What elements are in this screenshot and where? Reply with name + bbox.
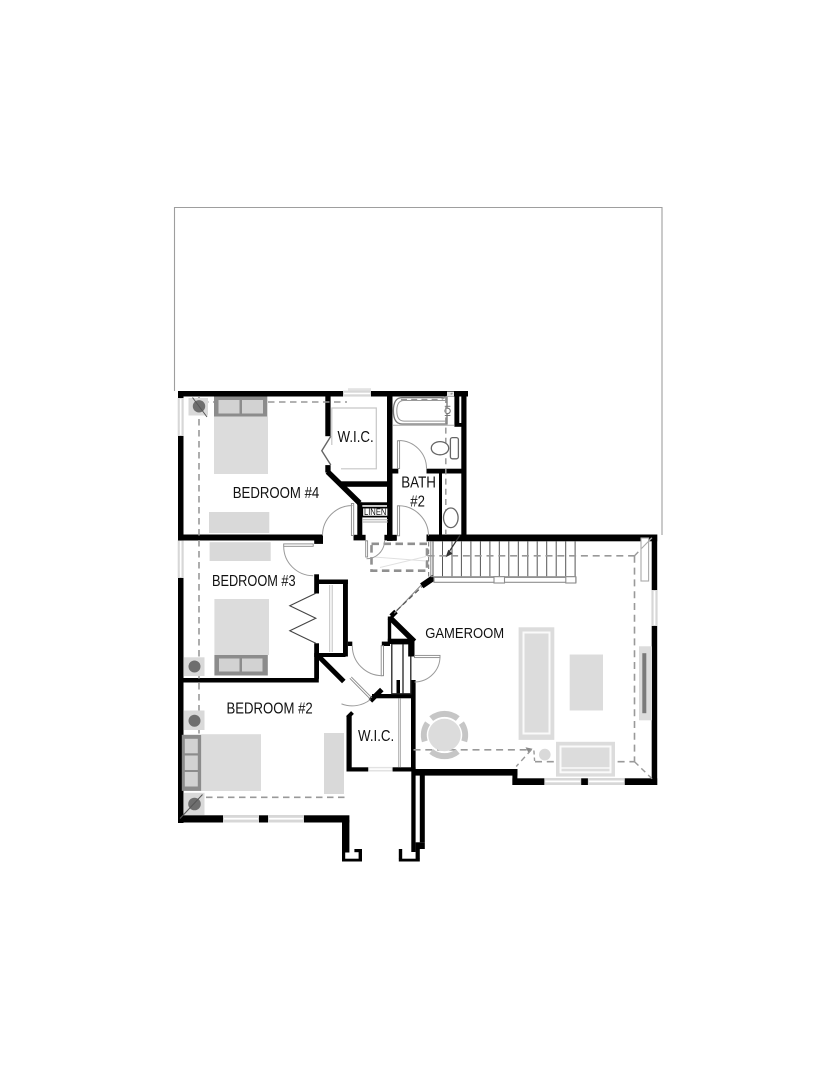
svg-text:W.I.C.: W.I.C. [358, 728, 394, 745]
svg-text:LINEN: LINEN [364, 507, 387, 518]
svg-text:W.I.C.: W.I.C. [338, 429, 374, 446]
svg-text:BEDROOM #3: BEDROOM #3 [212, 573, 296, 590]
svg-text:BATH: BATH [401, 474, 436, 491]
svg-text:GAMEROOM: GAMEROOM [425, 625, 504, 642]
svg-text:BEDROOM #4: BEDROOM #4 [233, 485, 320, 502]
svg-text:BEDROOM #2: BEDROOM #2 [227, 701, 313, 718]
svg-text:#2: #2 [410, 493, 425, 510]
